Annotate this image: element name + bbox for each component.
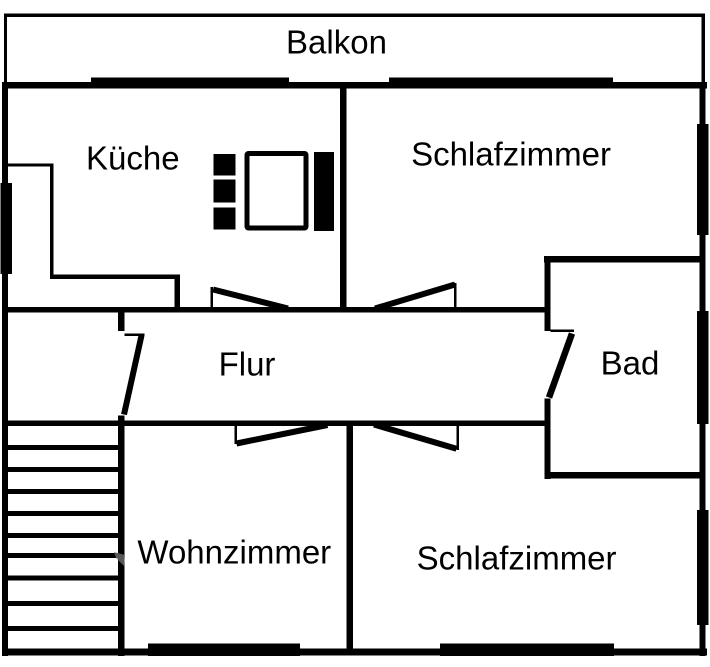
svg-text:Schlafzimmer: Schlafzimmer bbox=[411, 136, 611, 173]
svg-text:Balkon: Balkon bbox=[286, 24, 387, 61]
svg-text:Wohnzimmer: Wohnzimmer bbox=[137, 534, 331, 571]
svg-text:Flur: Flur bbox=[219, 346, 276, 383]
svg-text:Küche: Küche bbox=[86, 140, 180, 177]
svg-text:Bad: Bad bbox=[601, 345, 660, 382]
svg-text:Schlafzimmer: Schlafzimmer bbox=[417, 540, 617, 577]
